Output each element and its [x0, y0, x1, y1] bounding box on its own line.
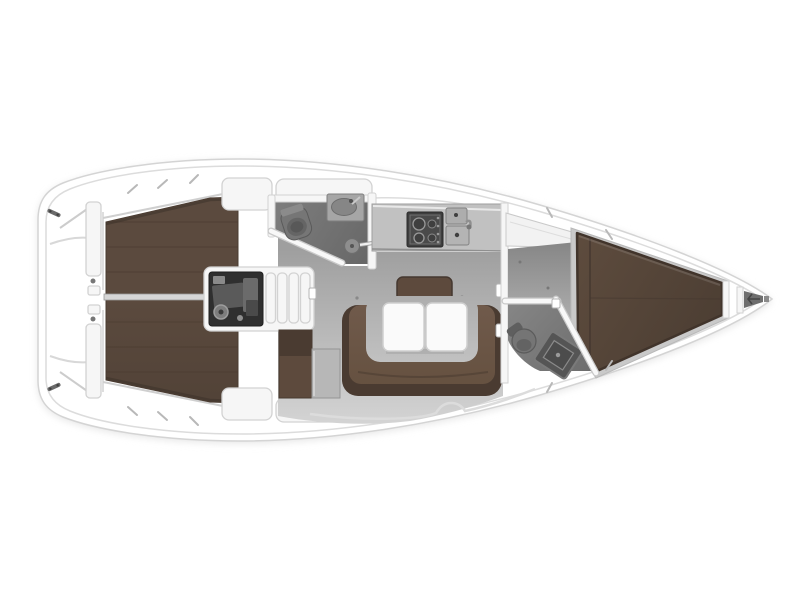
boat-floorplan	[0, 0, 800, 600]
nav-seat-backrest	[279, 330, 312, 356]
floor-fitting-dot	[355, 296, 358, 299]
cockpit-bench-top	[222, 178, 272, 210]
sink-vanity	[327, 194, 364, 221]
door-hinge	[552, 299, 560, 308]
bow-bulkhead-1	[723, 281, 729, 318]
floorplan-stage	[0, 0, 800, 600]
cockpit-centerline-track	[104, 294, 210, 300]
saloon-table-leaf-left	[383, 303, 424, 351]
wheel-hub-top	[91, 279, 96, 284]
galley	[372, 204, 503, 251]
helm-pedestal-step-bottom	[88, 305, 100, 314]
helm-pedestal-step-top	[88, 286, 100, 295]
floor-fitting-dot	[519, 261, 522, 264]
door-latch	[309, 288, 316, 299]
engine-companionway	[204, 267, 316, 331]
bow-fitting	[764, 296, 769, 302]
saloon-table-leaf-right	[426, 303, 467, 351]
floor-fitting-dot	[547, 287, 550, 290]
nav-table	[312, 349, 340, 398]
wheel-hub-bottom	[91, 317, 96, 322]
bow-bulkhead-2	[737, 287, 743, 313]
cockpit-bench-bottom	[222, 388, 272, 420]
stove	[407, 212, 443, 247]
helm-station-bottom	[86, 324, 101, 398]
helm-station-top	[86, 202, 101, 276]
